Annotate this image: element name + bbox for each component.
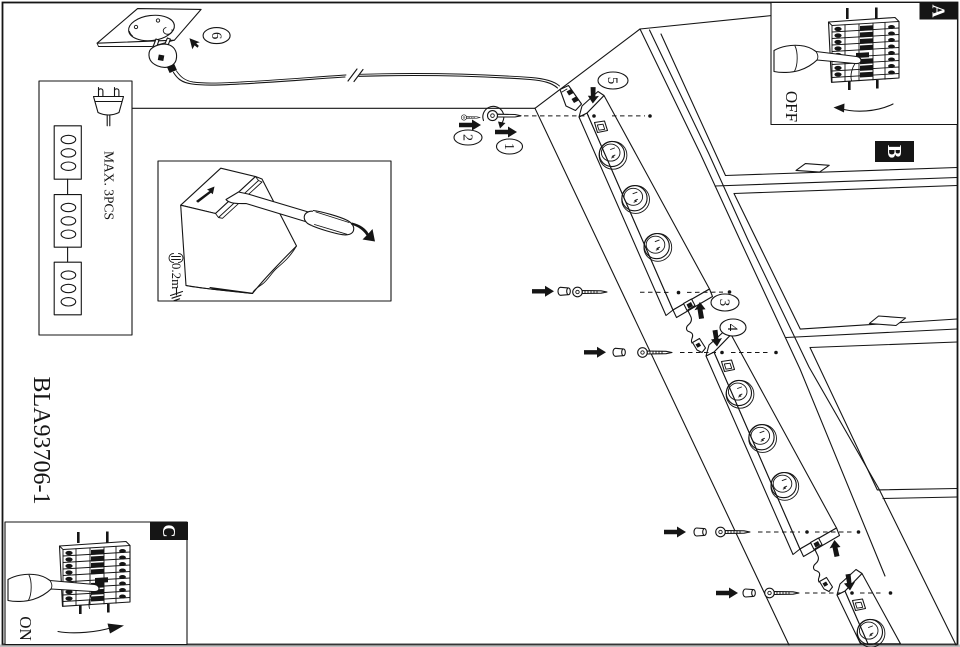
- svg-text:OFF: OFF: [782, 91, 801, 122]
- svg-text:2: 2: [459, 134, 474, 141]
- svg-text:1: 1: [501, 143, 516, 150]
- svg-text:0.2m: 0.2m: [169, 263, 184, 289]
- svg-text:ON: ON: [16, 616, 35, 641]
- svg-text:B: B: [883, 145, 905, 158]
- svg-text:A: A: [929, 5, 949, 18]
- svg-text:5: 5: [604, 77, 620, 85]
- svg-text:6: 6: [208, 32, 224, 39]
- svg-text:4: 4: [724, 324, 740, 332]
- svg-text:C: C: [159, 525, 179, 538]
- svg-text:MAX. 3PCS: MAX. 3PCS: [102, 151, 117, 220]
- svg-text:BLA93706-1: BLA93706-1: [28, 377, 54, 505]
- svg-text:3: 3: [716, 299, 732, 307]
